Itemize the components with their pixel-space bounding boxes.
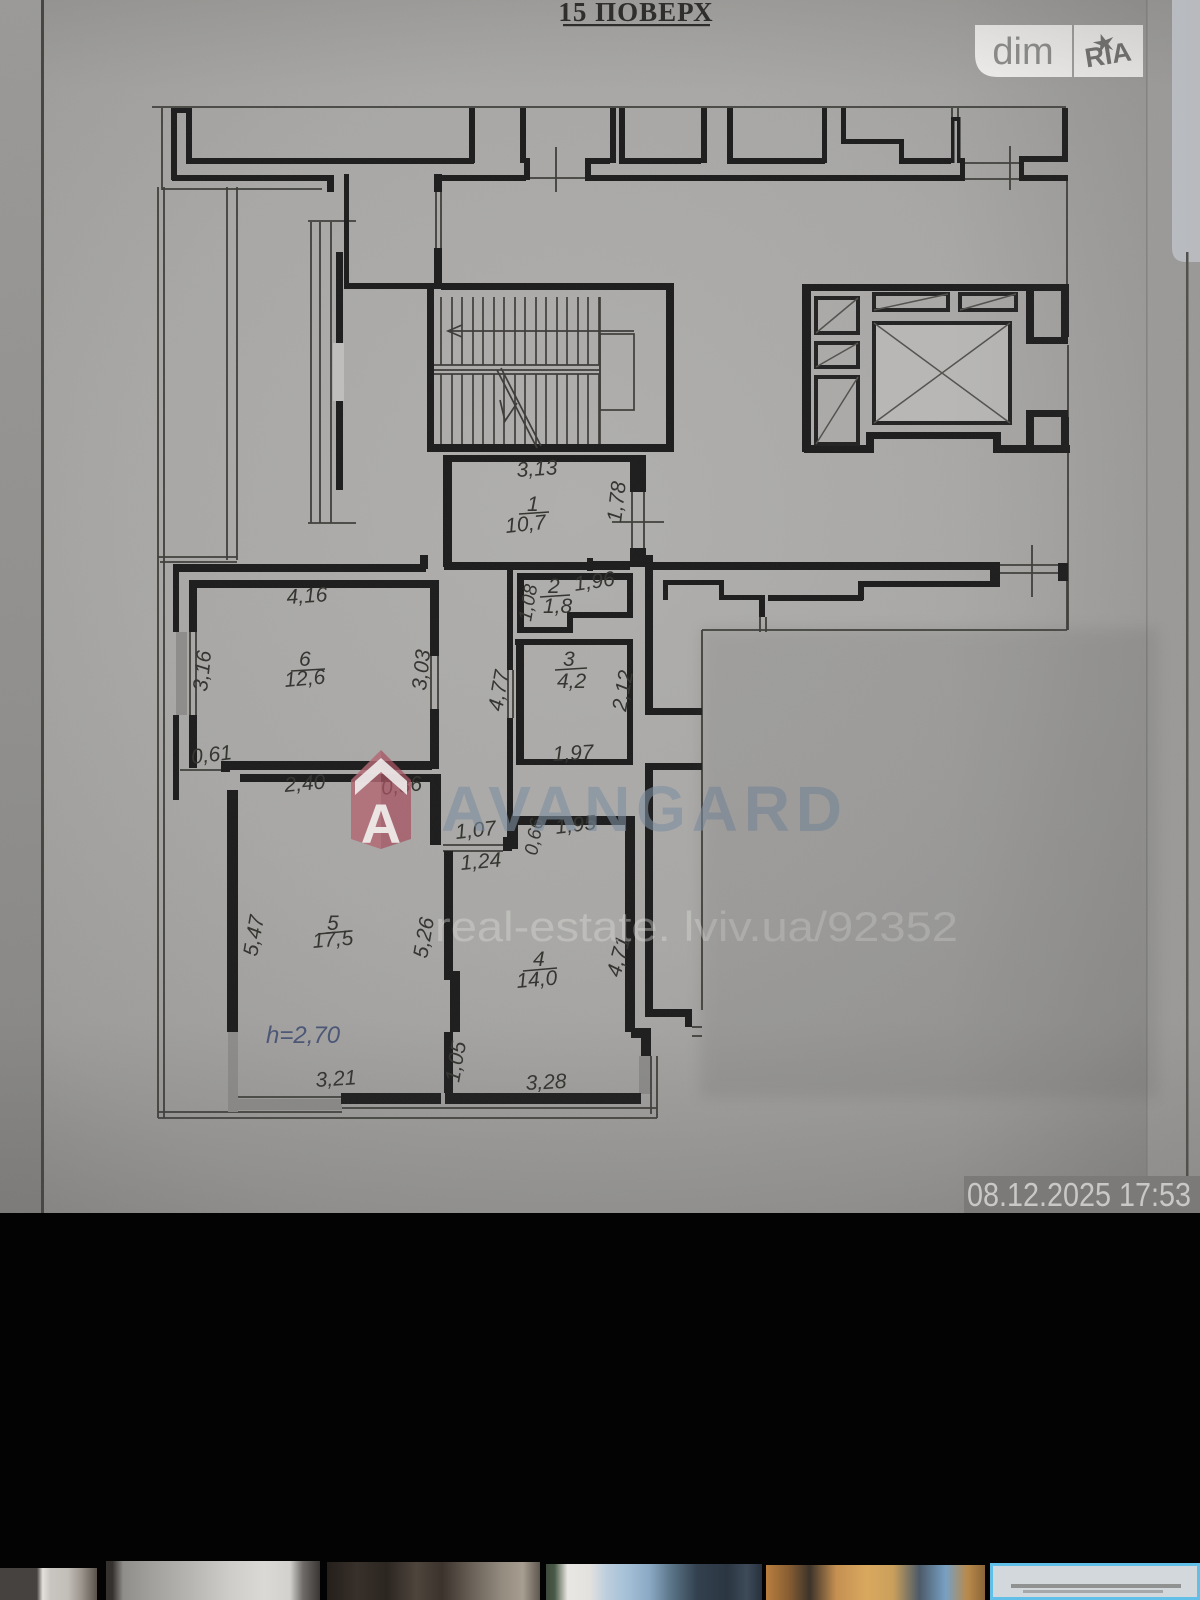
svg-text:08.12.2025 17:53: 08.12.2025 17:53: [967, 1176, 1191, 1213]
